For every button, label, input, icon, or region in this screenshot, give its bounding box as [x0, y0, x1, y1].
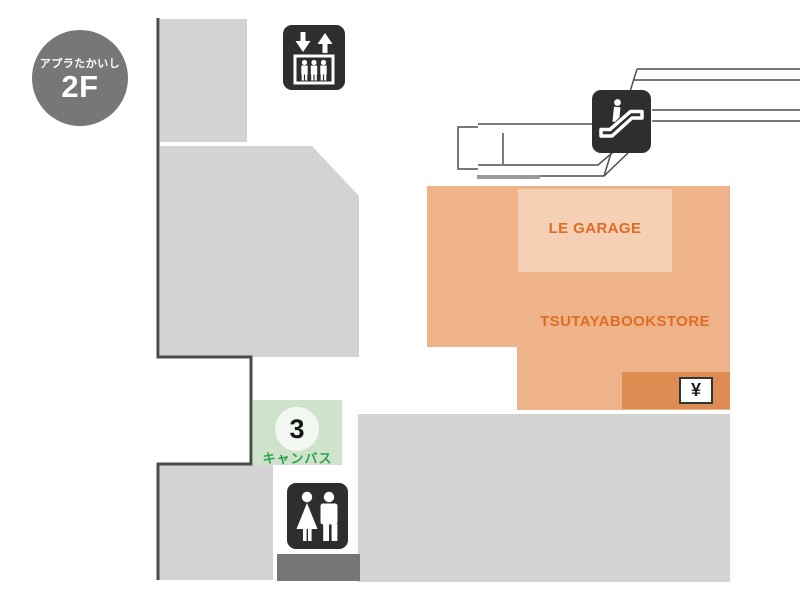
restroom-icon[interactable] [287, 483, 348, 549]
floor-badge: アプラたかいし 2F [32, 30, 128, 126]
escalator-icon[interactable] [592, 90, 651, 153]
shop-area-bottom-right [358, 414, 730, 582]
atm-area[interactable] [622, 372, 730, 409]
floor-map-2f: アプラたかいし 2F LE GARAGE TSUTAYABOOKSTORE 3 … [0, 0, 800, 600]
small-wall-segment [477, 175, 540, 179]
yen-symbol: ¥ [691, 380, 701, 401]
shop-area-mid-left [160, 146, 359, 357]
tsutaya-label: TSUTAYABOOKSTORE [513, 314, 737, 330]
le-garage-label: LE GARAGE [518, 221, 672, 237]
canvas-number-badge: 3 [275, 407, 319, 451]
elevator-icon[interactable] [283, 25, 345, 90]
shop-area-top-left [160, 19, 247, 142]
canvas-label: キャンバス [250, 448, 345, 467]
canvas-number: 3 [289, 414, 304, 445]
shop-area-bottom-left [159, 465, 273, 580]
yen-atm-icon[interactable]: ¥ [679, 377, 713, 404]
guide-bracket [458, 127, 478, 169]
floor-label: 2F [61, 71, 98, 103]
dark-strip-bottom [277, 554, 360, 581]
